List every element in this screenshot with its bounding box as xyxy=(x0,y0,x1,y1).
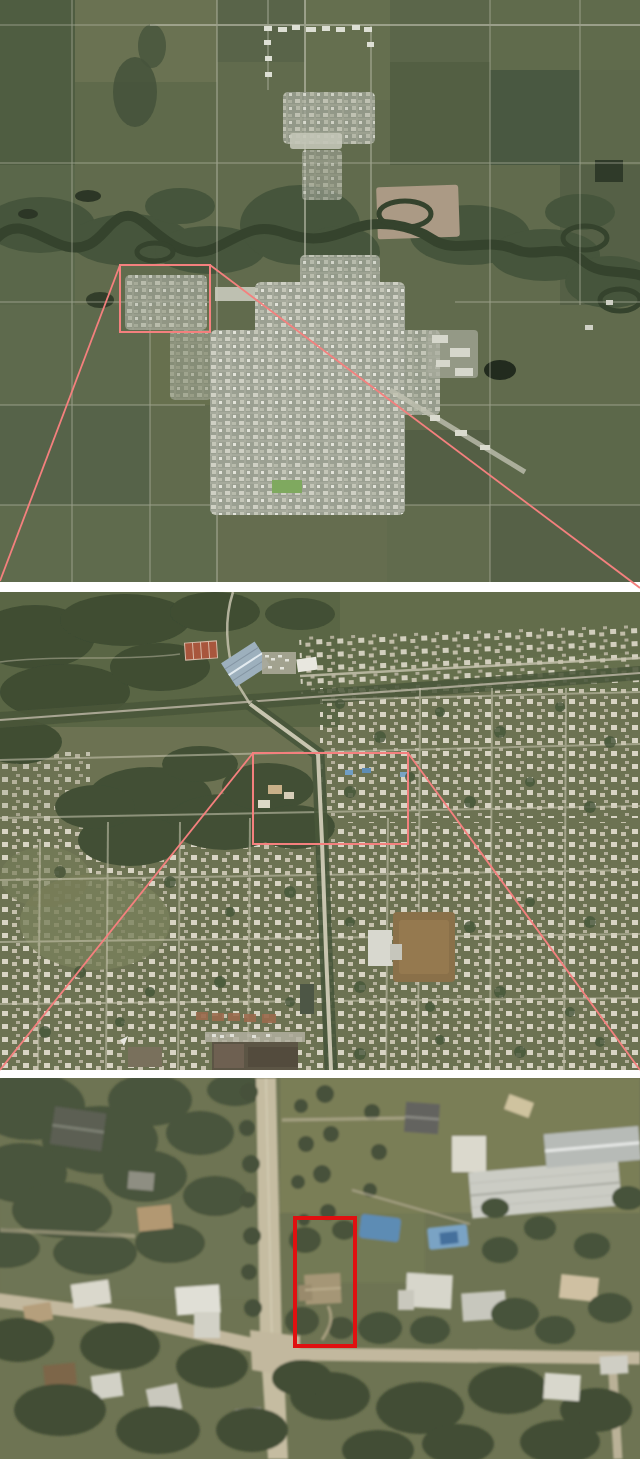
property-satellite-art xyxy=(0,1078,640,1459)
overview-satellite-art xyxy=(0,0,640,582)
neighborhood-satellite-art xyxy=(0,592,640,1070)
aerial-zoom-figure xyxy=(0,0,640,1459)
property-aerial-photo xyxy=(0,1078,640,1459)
overview-aerial-photo xyxy=(0,0,640,582)
neighborhood-aerial-photo xyxy=(0,592,640,1070)
